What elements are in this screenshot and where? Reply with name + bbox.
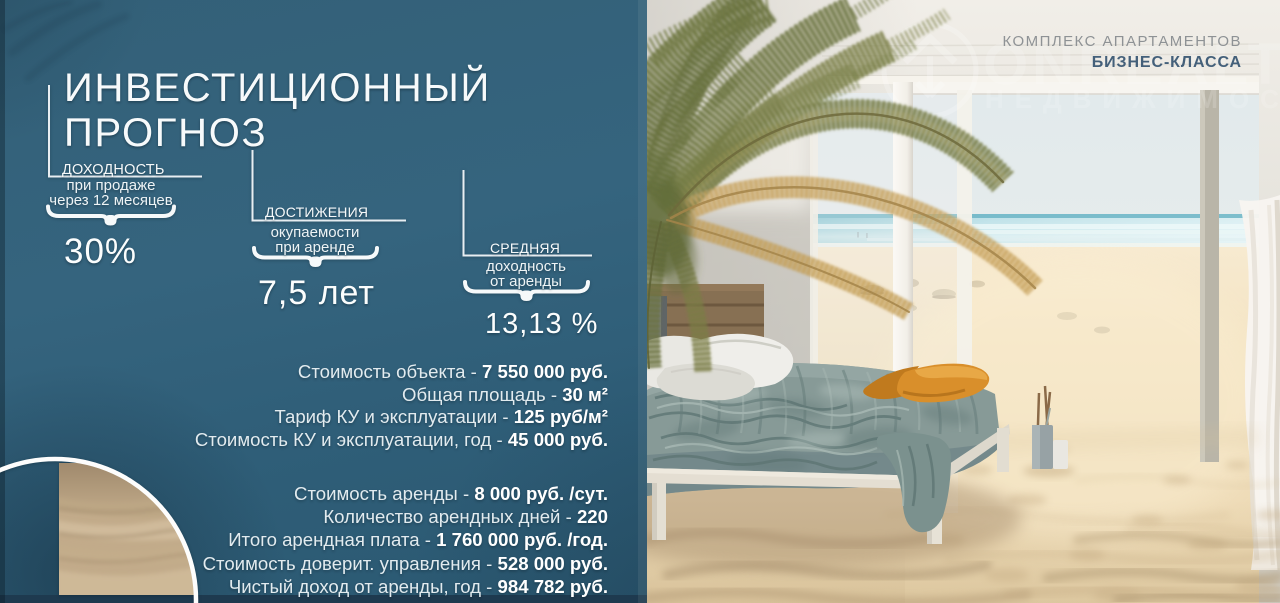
svg-text:НЕДВИЖИМОСТЬ: НЕДВИЖИМОСТЬ <box>985 84 1280 114</box>
